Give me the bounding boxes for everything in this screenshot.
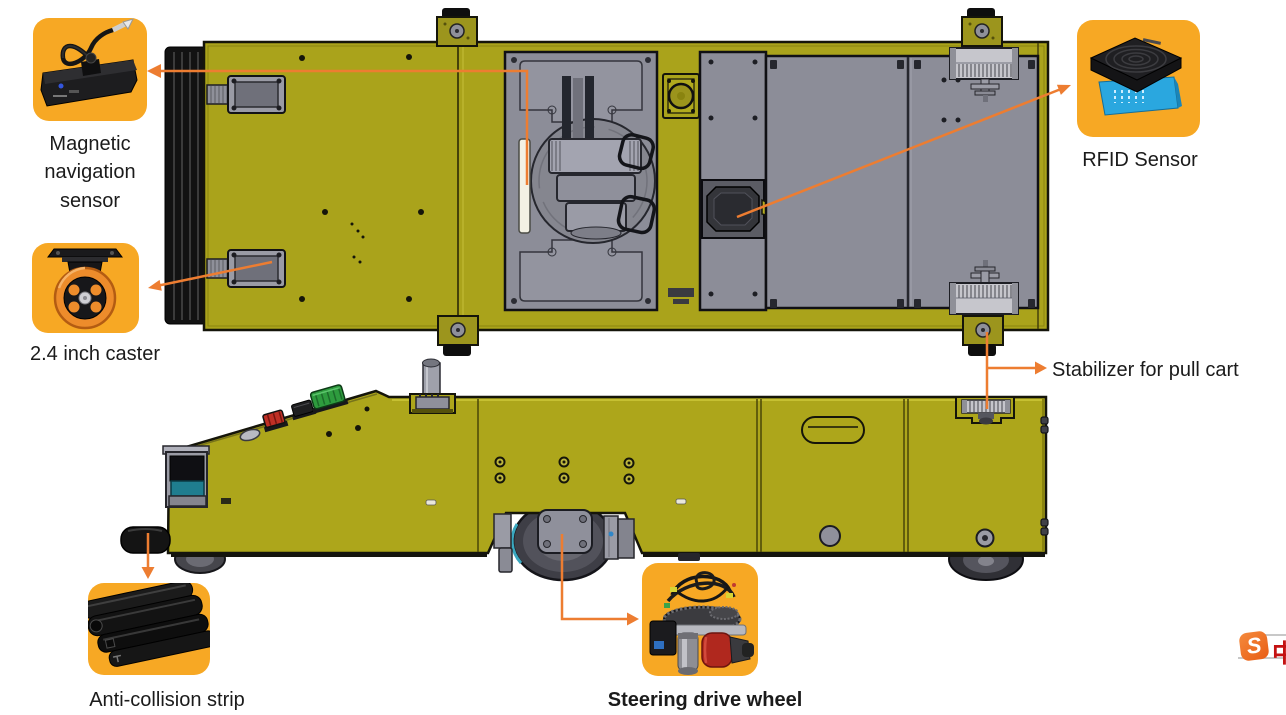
diagram-canvas: Magnetic navigation sensor RFID Sensor 2… bbox=[0, 0, 1286, 715]
label-stabilizer: Stabilizer for pull cart bbox=[1052, 356, 1286, 384]
rfid-sensor-image bbox=[1077, 20, 1200, 137]
watermark-s-badge: S bbox=[1238, 630, 1269, 661]
caster-photo-box bbox=[32, 243, 139, 333]
mount-bracket-bottom-right bbox=[963, 316, 1003, 356]
anti-collision-photo-box bbox=[88, 583, 210, 675]
label-steering-drive-wheel: Steering drive wheel bbox=[595, 686, 815, 714]
agv-side-view bbox=[121, 359, 1048, 580]
watermark-cjk-character: 中 bbox=[1272, 634, 1286, 670]
watermark-letter: S bbox=[1245, 632, 1263, 659]
mount-bracket-top-left bbox=[437, 8, 477, 46]
arrowhead-magnetic bbox=[147, 64, 161, 78]
mount-bracket-top-right bbox=[962, 8, 1002, 46]
agv-top-view bbox=[165, 8, 1048, 356]
steering-drive-wheel-image bbox=[642, 563, 758, 676]
rfid-sensor-photo-box bbox=[1077, 20, 1200, 137]
antenna-pole bbox=[410, 359, 455, 413]
arrowhead-caster bbox=[148, 280, 162, 291]
watermark-logo: S 中 bbox=[1236, 626, 1286, 676]
rfid-panel bbox=[700, 52, 773, 310]
anti-collision-strip-image bbox=[88, 583, 210, 675]
label-rfid-sensor: RFID Sensor bbox=[1060, 146, 1220, 174]
arrowhead-steering bbox=[627, 613, 639, 626]
front-sensor-housing bbox=[163, 446, 209, 507]
magnetic-sensor-slot bbox=[519, 139, 530, 233]
label-caster: 2.4 inch caster bbox=[0, 340, 190, 368]
anti-collision-strip-location bbox=[121, 527, 170, 553]
magnetic-sensor-photo-box bbox=[33, 18, 147, 121]
rear-plate bbox=[766, 48, 1038, 314]
label-magnetic-navigation-sensor: Magnetic navigation sensor bbox=[15, 130, 165, 215]
bearing-block bbox=[663, 74, 699, 118]
magnetic-navigation-sensor-image bbox=[33, 18, 147, 121]
arrowhead-anticollision bbox=[142, 567, 155, 579]
label-anti-collision-strip: Anti-collision strip bbox=[62, 686, 272, 714]
arrowhead-stabilizer bbox=[1035, 362, 1047, 375]
arrowhead-rfid bbox=[1057, 85, 1071, 95]
caster-image bbox=[32, 243, 139, 333]
mount-bracket-bottom-left bbox=[438, 316, 478, 356]
steering-wheel-photo-box bbox=[642, 563, 758, 676]
